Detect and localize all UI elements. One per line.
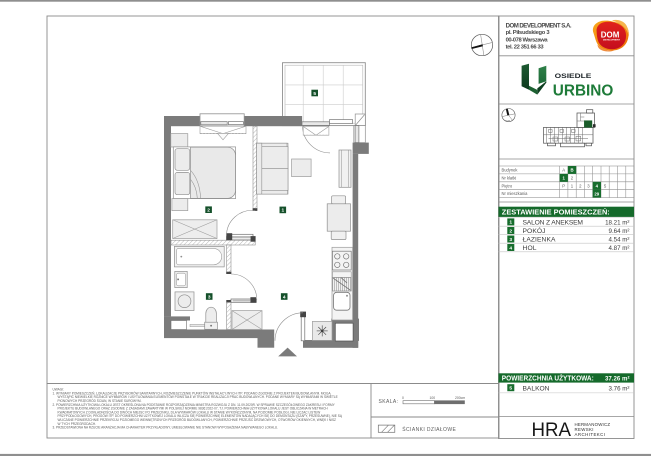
svg-text:DEVELOPMENT: DEVELOPMENT [603,40,621,42]
svg-text:200cm: 200cm [455,396,465,400]
svg-text:3. PRZEDSTAWIONA NA RZUCIE A: 3. PRZEDSTAWIONA NA RZUCIE ARANŻACJA MA … [53,425,279,430]
svg-text:Budynek: Budynek [502,168,519,173]
svg-text:4: 4 [283,294,286,300]
svg-text:HOL: HOL [523,245,537,252]
svg-text:SKALA:: SKALA: [379,399,399,405]
svg-text:HRA: HRA [532,420,572,441]
svg-text:DOM: DOM [601,31,620,40]
svg-text:4.87 m²: 4.87 m² [609,245,630,252]
svg-text:URBINO: URBINO [553,83,614,100]
svg-text:37.26 m²: 37.26 m² [605,376,630,383]
svg-text:POKÓJ: POKÓJ [523,226,546,235]
svg-text:4.54 m²: 4.54 m² [609,236,630,243]
svg-text:00-078 Warszawa: 00-078 Warszawa [506,38,549,44]
svg-text:100: 100 [430,396,436,400]
svg-text:pl. Piłsudskiego 3: pl. Piłsudskiego 3 [506,30,551,36]
svg-text:ZESTAWIENIE POMIESZCZEŃ:: ZESTAWIENIE POMIESZCZEŃ: [502,207,610,216]
svg-text:Piętro: Piętro [502,183,513,188]
svg-text:OSIEDLE: OSIEDLE [555,74,592,80]
svg-text:Nr klatki: Nr klatki [502,175,517,180]
svg-text:1: 1 [281,208,284,214]
svg-text:B: B [570,168,573,173]
svg-text:2: 2 [509,228,512,234]
svg-text:18.21 m²: 18.21 m² [605,219,629,226]
svg-text:0: 0 [402,396,404,400]
svg-text:Nr mieszkania: Nr mieszkania [502,191,529,196]
svg-text:9.64 m²: 9.64 m² [609,228,630,235]
svg-text:P: P [562,183,565,188]
svg-text:3: 3 [208,294,211,300]
svg-text:SALON Z ANEKSEM: SALON Z ANEKSEM [523,219,584,226]
svg-text:1: 1 [509,220,512,226]
svg-text:2: 2 [207,208,210,214]
svg-text:tel. 22 351 66 33: tel. 22 351 66 33 [506,45,545,51]
svg-text:WLICZANE POWIERZCHNIE PRZEKROJ: WLICZANE POWIERZCHNIE PRZEKROJU POZIOMEG… [58,417,337,422]
svg-text:BALKON: BALKON [523,385,550,392]
svg-text:POWIERZCHNIA UŻYTKOWA:: POWIERZCHNIA UŻYTKOWA: [502,375,594,383]
svg-text:DOM DEVELOPMENT S.A.: DOM DEVELOPMENT S.A. [506,22,572,29]
svg-text:A: A [562,168,565,173]
svg-text:29: 29 [594,191,599,196]
svg-text:5: 5 [509,386,512,392]
svg-text:ŁAZIENKA: ŁAZIENKA [523,236,557,243]
svg-text:3.76 m²: 3.76 m² [609,385,630,392]
svg-text:ARCHITEKCI: ARCHITEKCI [575,432,606,437]
svg-text:3: 3 [509,237,512,243]
svg-text:5: 5 [313,91,316,97]
svg-text:4: 4 [509,245,512,251]
svg-text:ŚCIANKI DZIAŁOWE: ŚCIANKI DZIAŁOWE [402,425,456,433]
